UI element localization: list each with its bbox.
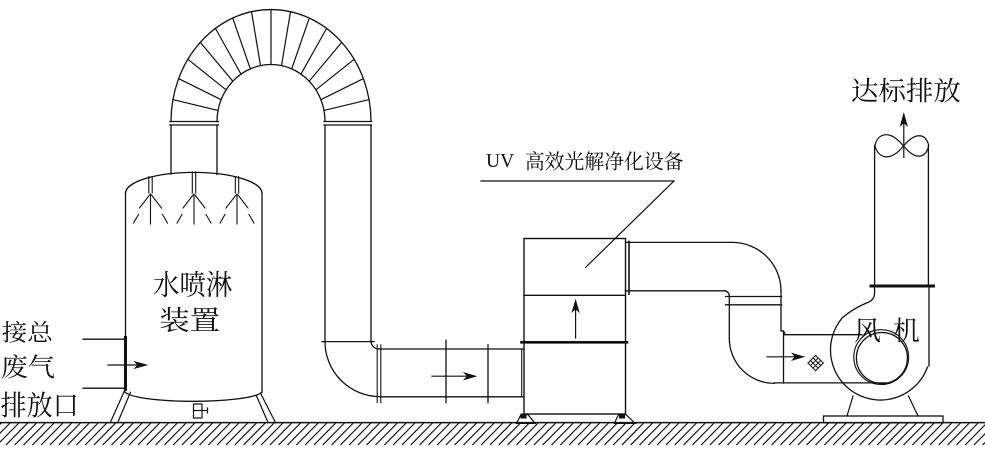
svg-text:UV: UV (486, 151, 514, 172)
